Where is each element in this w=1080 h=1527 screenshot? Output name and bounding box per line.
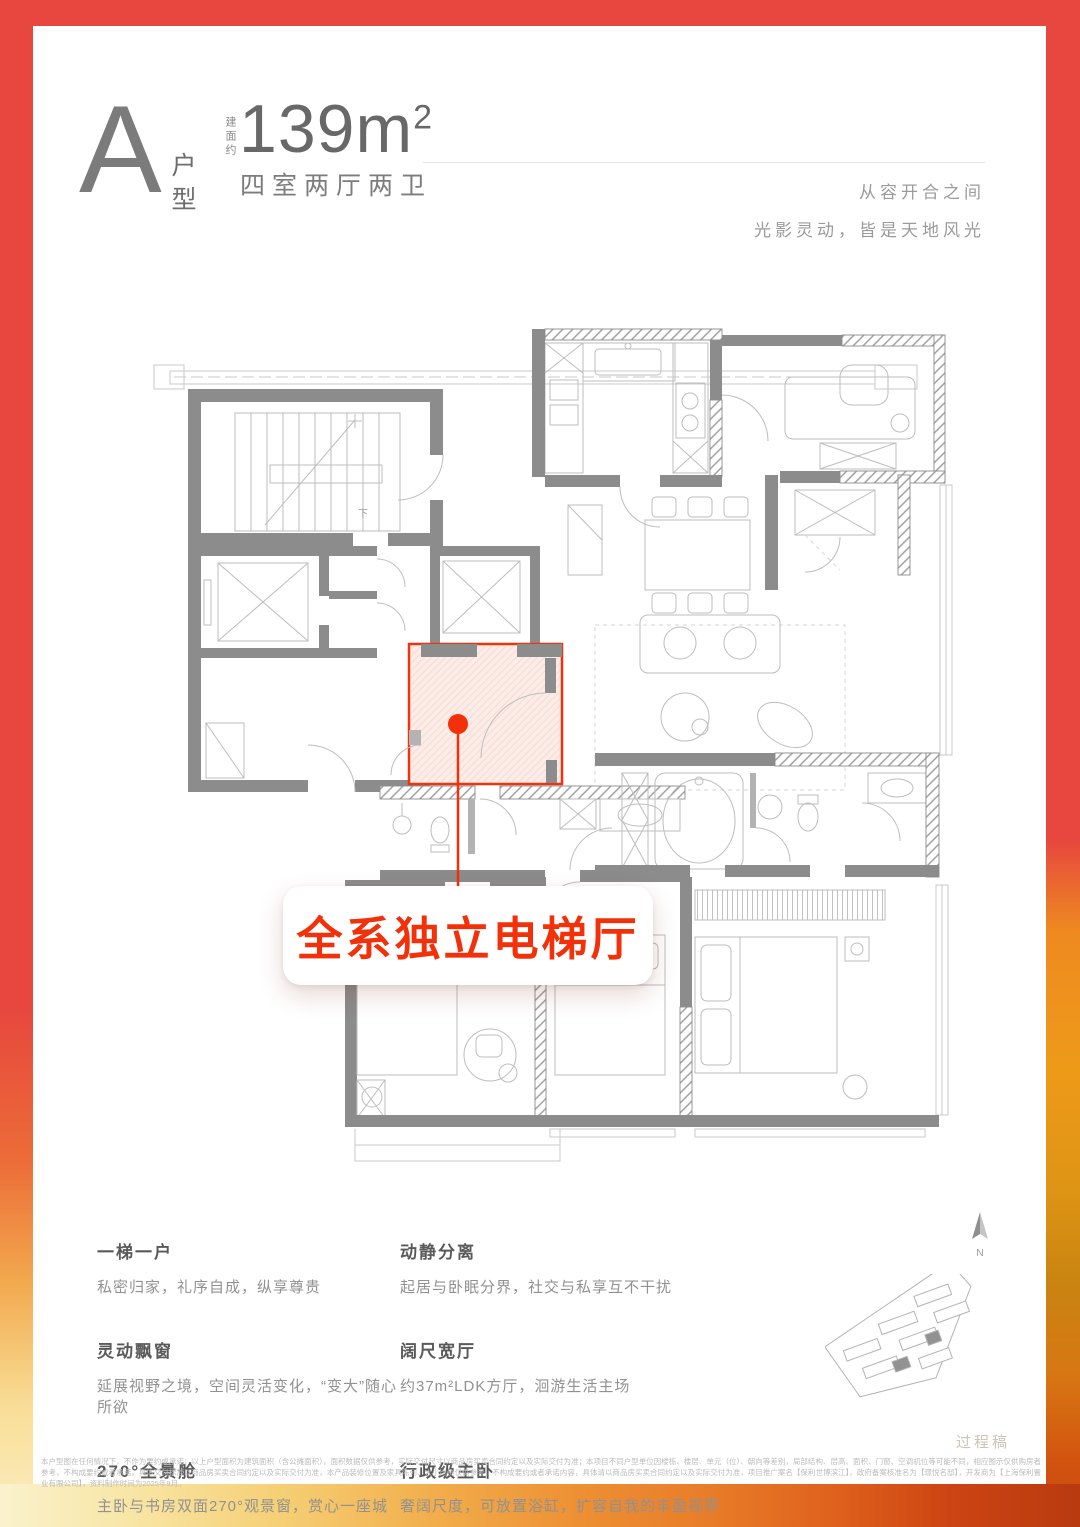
room-config: 四室两厅两卫 xyxy=(240,166,432,202)
feature-title: 灵动飘窗 xyxy=(97,1337,400,1362)
header-divider xyxy=(423,162,985,163)
process-draft-watermark: 过程稿 xyxy=(956,1431,1010,1452)
tagline-line2: 光影灵动，皆是天地风光 xyxy=(754,222,985,239)
frame-gradient-left xyxy=(0,0,33,1527)
stair-down-label: 下 xyxy=(358,509,368,520)
feature-title: 阔尺宽厅 xyxy=(400,1337,797,1362)
callout-text: 全系独立电梯厅 xyxy=(297,903,640,969)
feature-desc: 主卧与书房双面270°观景窗，赏心一座城 xyxy=(97,1495,400,1516)
area-prefix-label: 建面约 xyxy=(222,116,238,158)
tagline: 从容开合之间 光影灵动，皆是天地风光 xyxy=(754,184,985,239)
feature-desc: 起居与卧眠分界，社交与私享互不干扰 xyxy=(400,1276,797,1297)
feature-desc: 奢阔尺度，可放置浴缸，扩容自我的丰盈视界 xyxy=(400,1495,797,1516)
floor-plan-drawing: 下 xyxy=(140,325,960,1165)
feature-bay-window: 灵动飘窗 延展视野之境，空间灵活变化，“变大”随心所欲 xyxy=(97,1337,400,1417)
site-plan-icon xyxy=(825,1274,985,1409)
unit-type-label: 户型 xyxy=(164,152,200,220)
disclaimer-line2: 诺，具体交付标准以商品房买卖合同约定以及实际交付为准，本产品装修位置及家具陈列、… xyxy=(41,1468,1041,1488)
feature-zoning: 动静分离 起居与卧眠分界，社交与私享互不干扰 xyxy=(400,1238,797,1297)
area-exponent: 2 xyxy=(413,98,433,136)
poster-page: A 户型 建面约 139m2 四室两厅两卫 从容开合之间 光影灵动，皆是天地风光 xyxy=(33,26,1046,1484)
feature-title: 动静分离 xyxy=(400,1238,797,1263)
feature-wide-hall: 阔尺宽厅 约37m²LDK方厅，洄游生活主场 xyxy=(400,1337,797,1417)
tagline-line1: 从容开合之间 xyxy=(754,184,985,201)
frame-gradient-right xyxy=(1046,0,1080,1527)
poster-frame: A 户型 建面约 139m2 四室两厅两卫 从容开合之间 光影灵动，皆是天地风光 xyxy=(0,0,1080,1527)
floor-plan: 下 xyxy=(140,325,960,1165)
feature-desc: 私密归家，礼序自成，纵享尊贵 xyxy=(97,1276,400,1297)
area-value: 139m2 xyxy=(239,90,433,168)
feature-desc: 延展视野之境，空间灵活变化，“变大”随心所欲 xyxy=(97,1375,400,1417)
area-unit: m xyxy=(355,91,413,167)
highlight-dot xyxy=(448,714,468,734)
feature-title: 一梯一户 xyxy=(97,1238,400,1263)
area-number: 139 xyxy=(239,91,355,167)
feature-one-elevator: 一梯一户 私密归家，礼序自成，纵享尊贵 xyxy=(97,1238,400,1297)
feature-desc: 约37m²LDK方厅，洄游生活主场 xyxy=(400,1375,797,1396)
compass-label: N xyxy=(962,1248,998,1259)
callout-label: 全系独立电梯厅 xyxy=(283,886,653,985)
disclaimer-text: 本户型图在任何情况下，不作为要约或承诺；以上户型面积为建筑面积（含公摊面积），面… xyxy=(41,1456,1041,1489)
unit-letter: A xyxy=(79,88,162,212)
compass-north-icon: N xyxy=(962,1210,998,1259)
